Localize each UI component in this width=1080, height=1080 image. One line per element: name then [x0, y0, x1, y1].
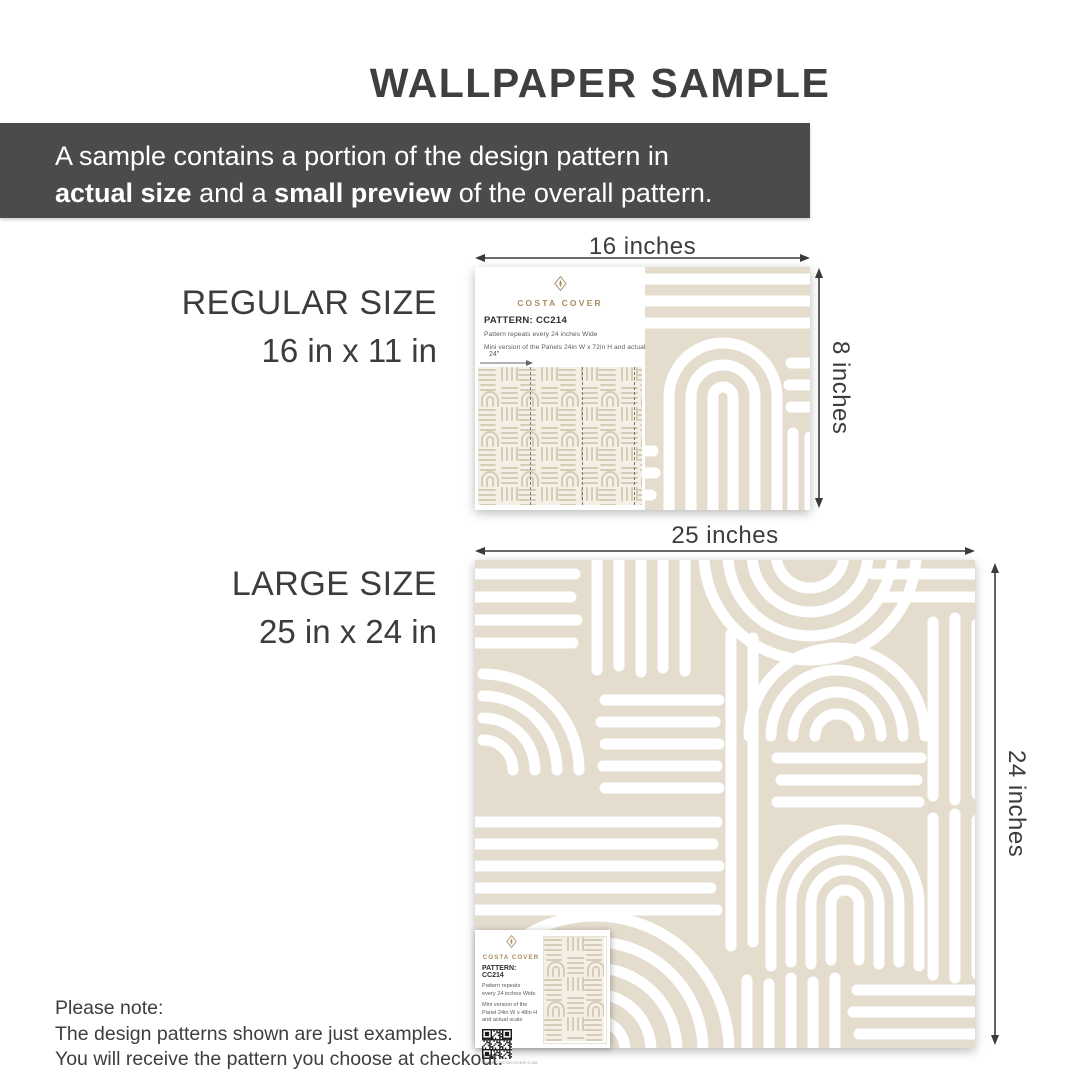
- brand-logo-icon: [506, 935, 517, 948]
- regular-height-label: 8 inches: [826, 268, 854, 508]
- large-sample-card: COSTA COVER PATTERN: CC214 Pattern repea…: [475, 560, 975, 1048]
- large-card-mini-preview: [543, 936, 607, 1044]
- regular-width-arrow: [475, 252, 810, 264]
- pattern-code: PATTERN: CC214: [484, 315, 567, 326]
- regular-height-arrow: [813, 268, 825, 508]
- banner-text: A sample contains a portion of the desig…: [55, 138, 712, 212]
- pattern-code: PATTERN: CC214: [482, 965, 540, 979]
- banner-line-1: A sample contains a portion of the desig…: [55, 138, 712, 175]
- panel-width-label: 24": [489, 351, 499, 358]
- wallpaper-pattern-regular: [645, 267, 810, 510]
- regular-sample-info-panel: COSTA COVER PATTERN: CC214 Pattern repea…: [475, 267, 645, 510]
- brand-logo-icon: [554, 276, 567, 291]
- large-width-arrow: [475, 545, 975, 557]
- large-height-label: 24 inches: [1002, 563, 1030, 1045]
- mini-pattern-preview: [478, 367, 642, 505]
- panel-divider: [634, 367, 635, 505]
- note-line-1: The design patterns shown are just examp…: [55, 1022, 503, 1048]
- brand-name: COSTA COVER: [475, 298, 645, 308]
- regular-size-name: REGULAR SIZE: [37, 284, 437, 323]
- note-title: Please note:: [55, 996, 503, 1022]
- brand-name: COSTA COVER: [482, 954, 540, 961]
- brand-logo: COSTA COVER: [475, 276, 645, 308]
- bottom-note: Please note: The design patterns shown a…: [55, 996, 503, 1073]
- regular-size-label-block: REGULAR SIZE 16 in x 11 in: [37, 284, 437, 370]
- banner-line-2: actual size and a small preview of the o…: [55, 175, 712, 212]
- large-size-name: LARGE SIZE: [37, 565, 437, 604]
- mini-pattern-tiles: [544, 937, 604, 1041]
- large-size-dims: 25 in x 24 in: [37, 613, 437, 651]
- pattern-repeat-note: Pattern repeats every 24 inches Wide: [484, 331, 598, 338]
- brand-logo: COSTA COVER: [482, 935, 540, 961]
- panel-width-arrow: [480, 359, 534, 367]
- regular-sample-card: COSTA COVER PATTERN: CC214 Pattern repea…: [475, 267, 810, 510]
- page-title: WALLPAPER SAMPLE: [160, 60, 1040, 107]
- large-size-label-block: LARGE SIZE 25 in x 24 in: [37, 565, 437, 651]
- panel-divider: [530, 367, 531, 505]
- note-line-2: You will receive the pattern you choose …: [55, 1047, 503, 1073]
- large-height-arrow: [989, 563, 1001, 1045]
- wallpaper-sample-infographic: WALLPAPER SAMPLE A sample contains a por…: [0, 0, 1080, 1080]
- pattern-mini-note: Mini version of the Panels 24in W x 72in…: [484, 344, 663, 351]
- panel-divider: [582, 367, 583, 505]
- mini-pattern-tiles: [478, 367, 642, 505]
- regular-size-dims: 16 in x 11 in: [37, 332, 437, 370]
- info-banner: A sample contains a portion of the desig…: [0, 123, 810, 218]
